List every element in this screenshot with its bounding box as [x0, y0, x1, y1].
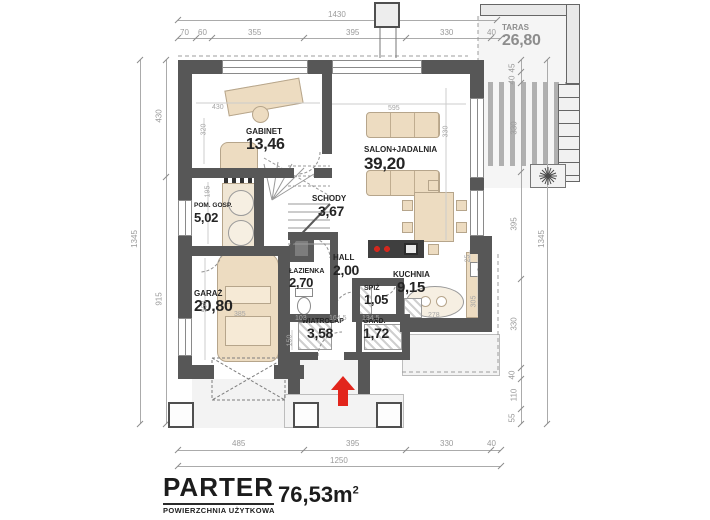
porch-pillar — [293, 402, 319, 428]
dim-top-seg: 60 — [198, 29, 207, 37]
dim-bottom-seg: 330 — [440, 440, 453, 448]
dim-interior: 278 — [428, 312, 440, 319]
porch-pier — [358, 360, 370, 394]
dim-bottom-seg: 40 — [487, 440, 496, 448]
dim-right-seg: 330 — [511, 121, 519, 134]
chimney — [374, 2, 400, 28]
page-subtitle: POWIERZCHNIA UŻYTKOWA — [163, 506, 275, 515]
room-name: ŁAZIENKA — [289, 268, 324, 275]
room-area: 3,67 — [318, 204, 346, 218]
wall-utility-right — [254, 178, 264, 246]
dim-right-seg: 110 — [510, 389, 518, 402]
dim-bottom-seg: 395 — [346, 440, 359, 448]
room-name: TARAS — [502, 24, 541, 32]
wall-gabinet-right — [322, 74, 332, 154]
dim-interior: 385 — [234, 311, 246, 318]
wall-entry-bottom — [288, 352, 318, 360]
room-name: SALON+JADALNIA — [364, 146, 437, 154]
wall-garage-top — [192, 246, 280, 256]
entrance-arrow-icon — [331, 376, 355, 390]
room-label-hall: HALL 2,00 — [333, 254, 359, 277]
dim-interior: 595 — [388, 105, 400, 112]
dim-interior: 550 — [201, 301, 208, 313]
dim-right-total: 1345 — [538, 230, 546, 248]
dim-interior: 164,5 — [329, 315, 347, 322]
room-area: 5,02 — [194, 211, 232, 224]
dim-interior: 103 — [295, 315, 307, 322]
room-area: 2,70 — [289, 276, 324, 289]
total-area-value: 76,53m — [278, 482, 353, 507]
dim-interior: 320 — [200, 124, 207, 136]
dim-left-total: 1345 — [131, 230, 139, 248]
wall-gabinet-bottom — [314, 168, 332, 178]
room-label-garaz: GARAŻ 20,80 — [194, 290, 233, 315]
porch-pier — [288, 360, 300, 394]
room-label-kuchnia: KUCHNIA 9,15 — [393, 271, 430, 295]
room-label-taras: TARAS 26,80 — [502, 24, 541, 49]
dim-bottom-seg: 485 — [232, 440, 245, 448]
dim-interior: 134,5 — [362, 315, 380, 322]
dim-interior: 330 — [442, 126, 449, 138]
dim-top-seg: 40 — [487, 29, 496, 37]
room-name: GARAŻ — [194, 290, 233, 298]
dim-right-seg: 395 — [511, 217, 519, 230]
wall-kitchen-right — [478, 250, 492, 320]
room-label-gabinet: GABINET 13,46 — [246, 128, 285, 153]
dim-interior: 305 — [470, 296, 477, 308]
wall-garage-front — [178, 365, 214, 379]
dim-top-seg: 330 — [440, 29, 453, 37]
room-label-lazienka: ŁAZIENKA 2,70 — [289, 268, 324, 289]
room-area: 13,46 — [246, 137, 285, 153]
wall-entry-bottom — [344, 352, 410, 360]
room-label-pomgosp: POM. GOSP. 5,02 — [194, 203, 232, 224]
dim-interior: 150 — [286, 335, 293, 347]
room-area: 39,20 — [364, 155, 437, 172]
wall-gabinet-bottom — [192, 168, 294, 178]
dim-left-seg: 915 — [156, 292, 164, 305]
dim-right-seg: 40 — [508, 76, 516, 85]
room-name: SPIŻ — [364, 285, 388, 292]
room-area: 3,58 — [307, 326, 344, 340]
dim-top-seg: 355 — [248, 29, 261, 37]
terrace-door-window — [470, 98, 484, 178]
room-name: HALL — [333, 254, 359, 262]
dim-right-seg: 45 — [508, 64, 516, 73]
room-name: GABINET — [246, 128, 285, 136]
dim-right-seg: 40 — [508, 371, 516, 380]
room-label-schody: SCHODY 3,67 — [312, 195, 346, 218]
dim-top-total: 1430 — [328, 11, 346, 19]
room-area: 1,05 — [364, 293, 388, 306]
window — [178, 318, 192, 356]
porch-pillar — [376, 402, 402, 428]
page-title: PARTER — [163, 474, 274, 505]
total-area: 76,53m2 — [278, 484, 359, 506]
window — [470, 190, 484, 236]
room-label-salon: SALON+JADALNIA 39,20 — [364, 146, 437, 172]
dim-bottom-total: 1250 — [330, 457, 348, 465]
room-area: 9,15 — [397, 280, 430, 295]
room-label-spiz: SPIŻ 1,05 — [364, 285, 388, 306]
total-area-sup: 2 — [353, 485, 359, 497]
wall-entry-divider — [356, 322, 362, 352]
window — [178, 200, 192, 236]
dim-right-seg: 55 — [508, 414, 516, 423]
window — [222, 60, 308, 74]
floor-plan: GABINET 13,46 SALON+JADALNIA 39,20 SCHOD… — [0, 0, 710, 520]
room-area: 1,72 — [363, 326, 389, 340]
room-name: POM. GOSP. — [194, 203, 232, 210]
wall-kitchen-bottom — [400, 318, 492, 332]
dim-top-seg: 70 — [180, 29, 189, 37]
entrance-arrow-stem — [338, 390, 348, 406]
window — [332, 60, 422, 74]
dim-interior: 430 — [212, 104, 224, 111]
dim-left-seg: 430 — [156, 109, 164, 122]
dim-top-seg: 395 — [346, 29, 359, 37]
room-name: KUCHNIA — [393, 271, 430, 279]
room-area: 20,80 — [194, 299, 233, 315]
corner-pillar — [168, 402, 194, 428]
room-name: SCHODY — [312, 195, 346, 203]
dim-interior: 25 — [464, 255, 471, 263]
dim-interior: 195 — [204, 186, 211, 198]
room-area: 2,00 — [333, 263, 359, 277]
dim-right-seg: 330 — [511, 317, 519, 330]
room-area: 26,80 — [502, 33, 541, 49]
